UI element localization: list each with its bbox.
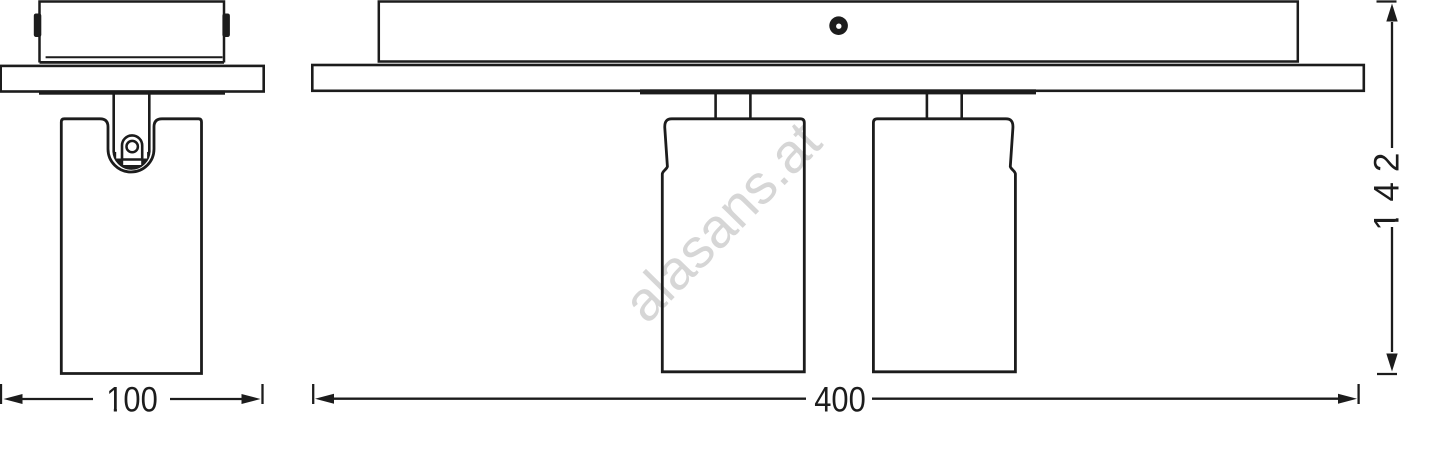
svg-text:400: 400	[814, 381, 866, 420]
svg-text:142: 142	[1367, 153, 1406, 231]
svg-text:100: 100	[106, 381, 158, 420]
svg-text:alasans.at: alasans.at	[611, 109, 833, 333]
